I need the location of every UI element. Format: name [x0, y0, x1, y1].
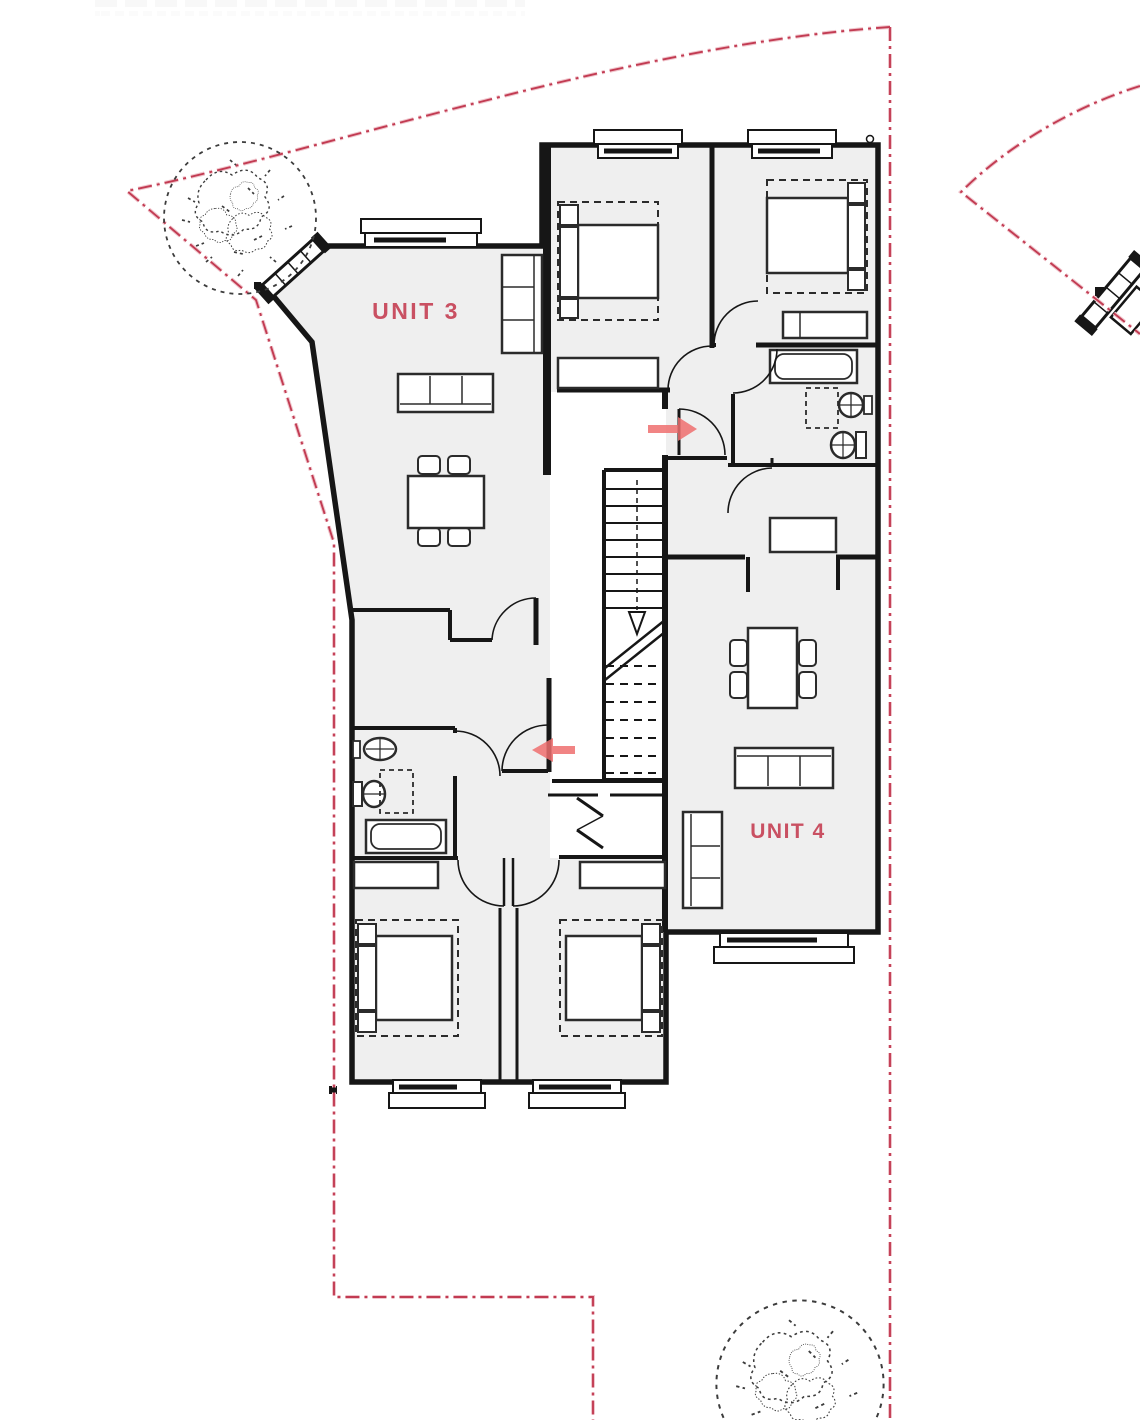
unit4-label: UNIT 4 [750, 820, 826, 843]
window-bedroom-top-left [594, 130, 682, 158]
wardrobe-icon-top-left [558, 358, 658, 388]
toilet-icon-unit4 [831, 432, 866, 458]
window-unit4-south [714, 933, 854, 963]
faint-cropped-header-text [95, 0, 525, 18]
floor-plan-drawing: UNIT 3 UNIT 4 [0, 0, 1140, 1420]
bay-corner-marker [254, 282, 261, 289]
sofa-icon-unit4-horizontal [735, 748, 833, 788]
bathtub-icon-unit3 [366, 820, 446, 853]
sink-icon-unit3 [353, 738, 396, 760]
bedside-table-icon [783, 312, 867, 338]
tree-icon-bottom-right [716, 1300, 883, 1420]
shelving-unit-icon [502, 255, 542, 353]
bed-icon-bedroom-a [356, 920, 458, 1036]
sofa-icon-unit4-vertical [683, 812, 722, 908]
window-bedroom-a-south [389, 1080, 485, 1108]
bathtub-icon-unit4 [770, 350, 857, 383]
survey-dot-marker [867, 136, 874, 143]
adjacent-building-bay-window [1075, 251, 1140, 354]
wardrobe-icon-bedroom-b [580, 862, 665, 888]
sofa-icon-unit3 [398, 374, 493, 412]
window-bedroom-top-right [748, 130, 836, 158]
sink-icon-unit4 [839, 393, 872, 417]
wardrobe-icon-bedroom-a [354, 862, 438, 888]
window-bedroom-b-south [529, 1080, 625, 1108]
window-unit3-north [361, 219, 481, 247]
floor-plan-page: UNIT 3 UNIT 4 [0, 0, 1140, 1420]
common-lobby-floor [550, 392, 666, 858]
unit3-label: UNIT 3 [372, 298, 460, 324]
storage-closet-icon [770, 518, 836, 552]
bed-icon-bedroom-b [560, 920, 662, 1036]
